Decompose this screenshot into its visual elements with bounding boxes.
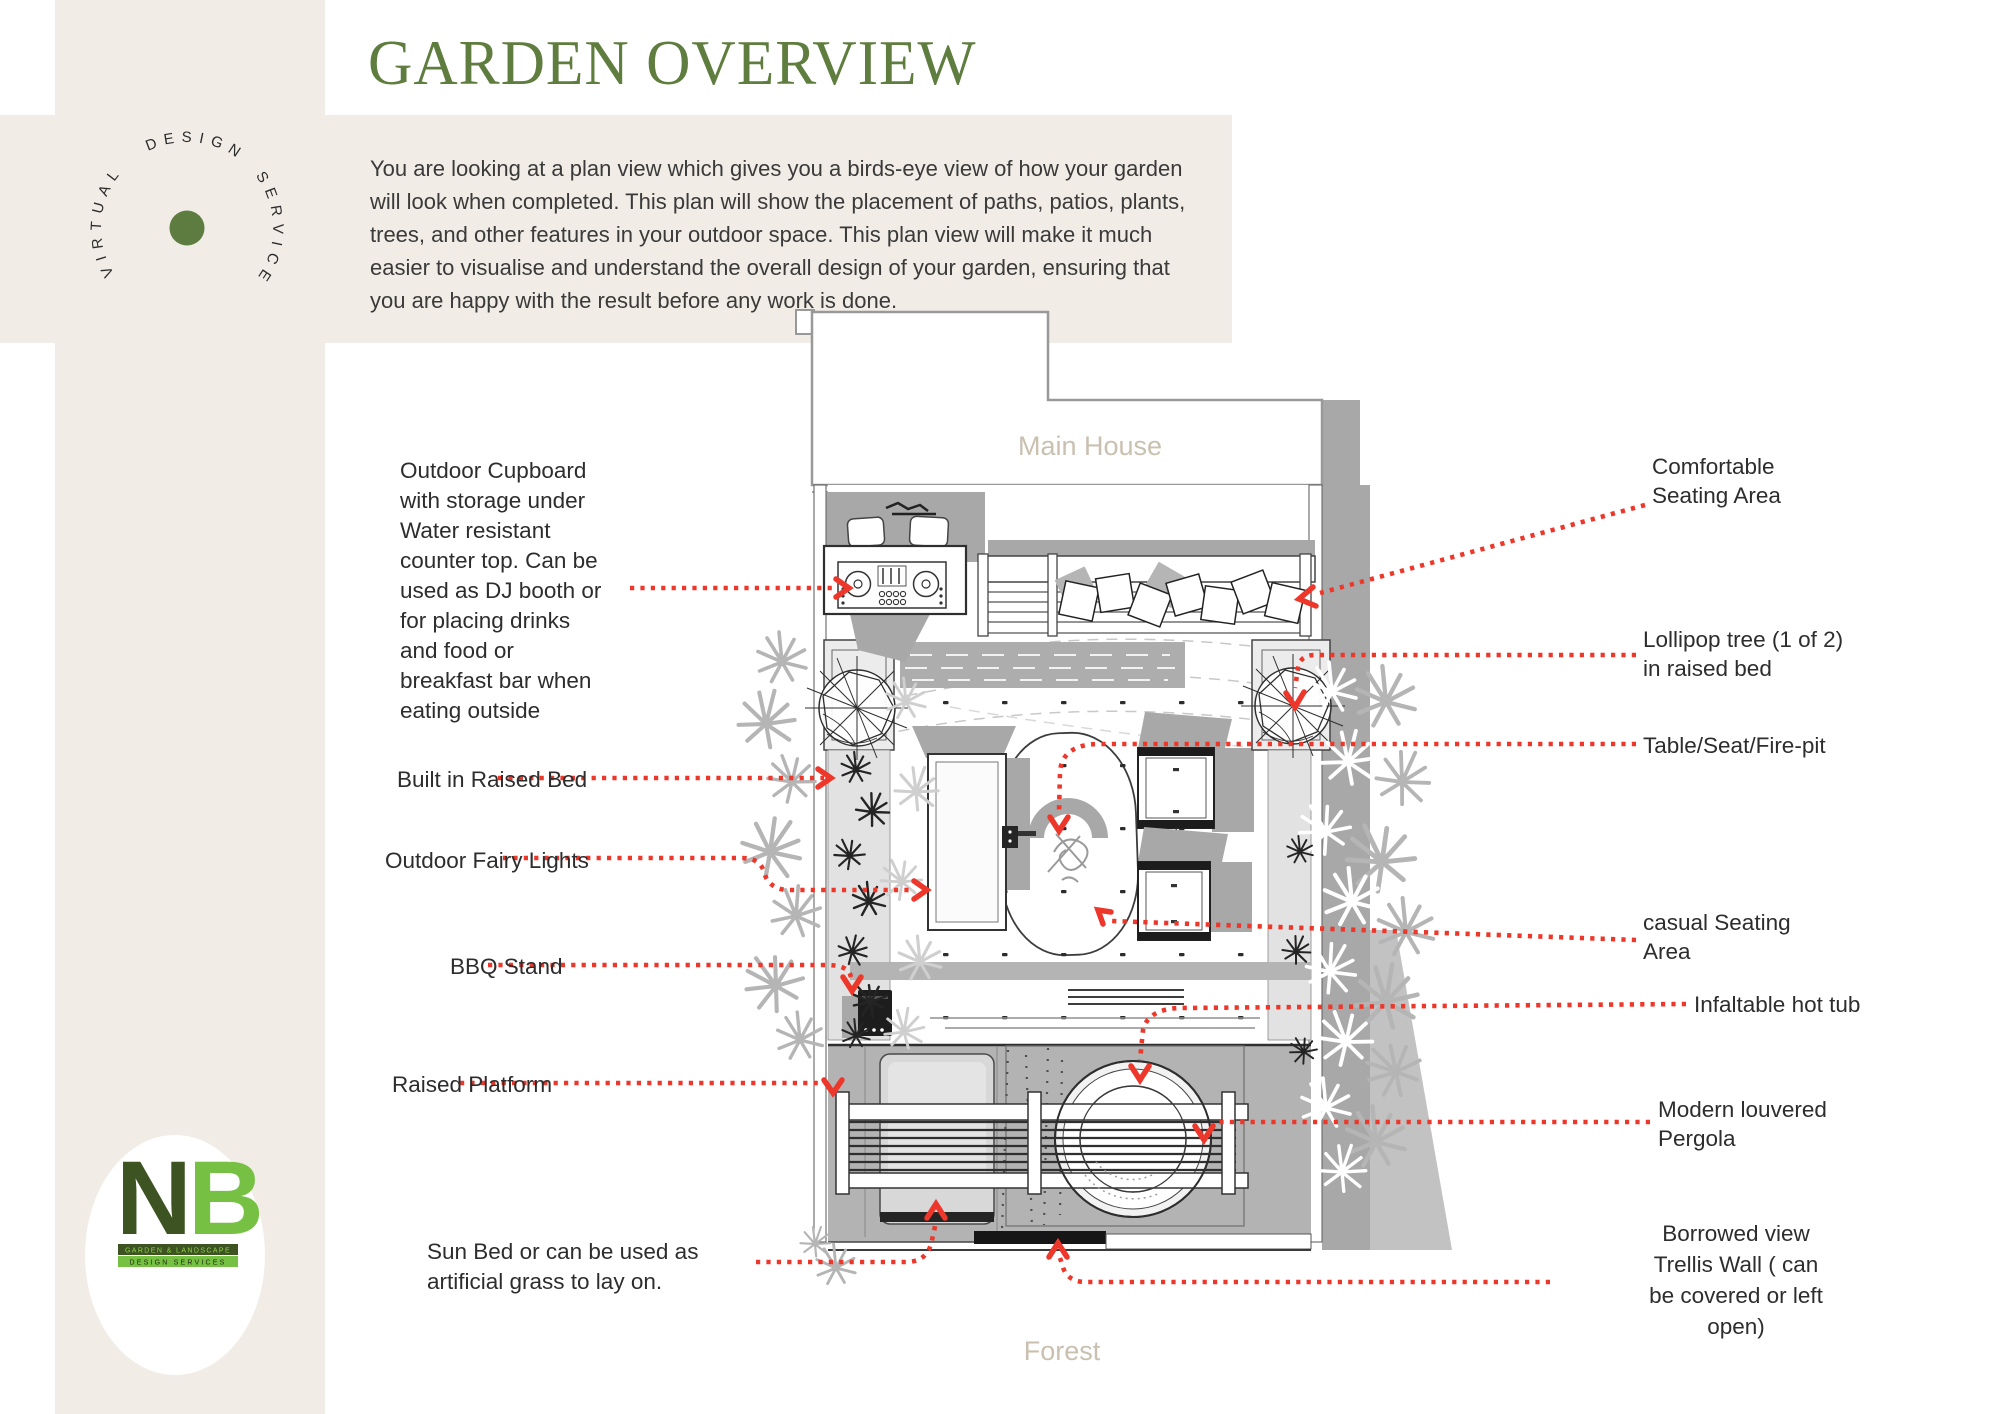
label-raised-platform: Raised Platform [392,1070,552,1099]
label-sun-bed: Sun Bed or can be used as artificial gra… [427,1237,698,1297]
badge-dot [170,211,205,246]
label-bbq-stand: BBQ Stand [450,952,563,981]
label-table-seat-firepit: Table/Seat/Fire-pit [1643,731,1826,760]
forest-label: Forest [1024,1336,1101,1366]
description-line: will look when completed. This plan will… [370,185,1185,218]
label-louvered-pergola: Modern louvered Pergola [1658,1095,1827,1153]
label-outdoor-cupboard: Outdoor Cupboard with storage under Wate… [400,456,601,726]
label-borrowed-view-trellis: Borrowed view Trellis Wall ( can be cove… [1630,1218,1842,1342]
label-comfortable-seating: Comfortable Seating Area [1652,452,1781,510]
svg-text:VIRTUAL: VIRTUAL [88,162,127,280]
nb-monogram-n: N [116,1140,192,1257]
description-line: easier to visualise and understand the o… [370,251,1185,284]
description-text: You are looking at a plan view which giv… [370,152,1185,317]
label-built-in-raised-bed: Built in Raised Bed [397,765,587,794]
main-house-label: Main House [1018,431,1162,461]
label-lollipop-tree: Lollipop tree (1 of 2) in raised bed [1643,625,1843,683]
right-raised-bed [1268,750,1311,1040]
page-title: GARDEN OVERVIEW [368,26,1136,100]
walkway-shadow [900,642,1185,688]
badge-word-virtual: VIRTUAL [88,162,127,280]
label-outdoor-fairy-lights: Outdoor Fairy Lights [385,846,589,875]
svg-text:DESIGN: DESIGN [143,129,249,165]
main-house: Main House [796,310,1322,492]
nb-monogram-b: B [188,1140,264,1257]
garden-overview-page: { "title": "GARDEN OVERVIEW", "badge": {… [0,0,2000,1414]
label-inflatable-hot-tub: Infaltable hot tub [1694,990,1860,1019]
description-line: You are looking at a plan view which giv… [370,152,1185,185]
badge-word-design: DESIGN [143,129,249,165]
svg-text:SERVICE: SERVICE [251,169,287,290]
description-line: you are happy with the result before any… [370,284,1185,317]
design-service-badge: VIRTUAL DESIGN SERVICE [47,88,327,368]
nb-bar2: DESIGN SERVICES [129,1260,226,1267]
badge-word-service: SERVICE [251,169,287,290]
nb-brand-logo: B N GARDEN & LANDSCAPE DESIGN SERVICES [80,1130,270,1380]
nb-bar1: GARDEN & LANDSCAPE [125,1248,231,1255]
description-line: trees, and other features in your outdoo… [370,218,1185,251]
label-casual-seating: casual Seating Area [1643,908,1791,966]
